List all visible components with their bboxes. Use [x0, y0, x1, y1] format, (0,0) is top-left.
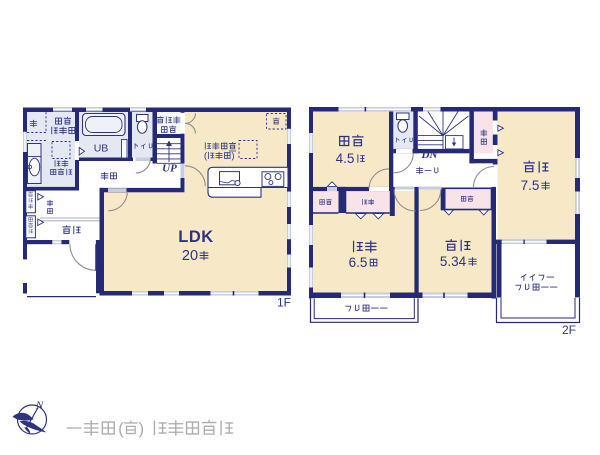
svg-text:): ) [232, 151, 235, 161]
svg-text:5.34: 5.34 [440, 254, 467, 269]
svg-text:DN: DN [421, 149, 439, 161]
svg-text:2F: 2F [562, 323, 576, 337]
svg-text:UP: UP [162, 163, 177, 175]
svg-text:6.5: 6.5 [349, 255, 368, 270]
svg-text:1F: 1F [277, 296, 291, 310]
svg-text:N: N [35, 400, 44, 412]
svg-text:UB: UB [94, 143, 109, 155]
svg-text:(: ( [204, 151, 207, 161]
svg-text:LDK: LDK [178, 228, 213, 246]
svg-text:): ) [138, 419, 144, 438]
svg-text:7.5: 7.5 [521, 178, 540, 193]
svg-text:4.5: 4.5 [336, 151, 355, 166]
svg-text:20: 20 [182, 248, 198, 264]
svg-text:(: ( [118, 419, 124, 438]
